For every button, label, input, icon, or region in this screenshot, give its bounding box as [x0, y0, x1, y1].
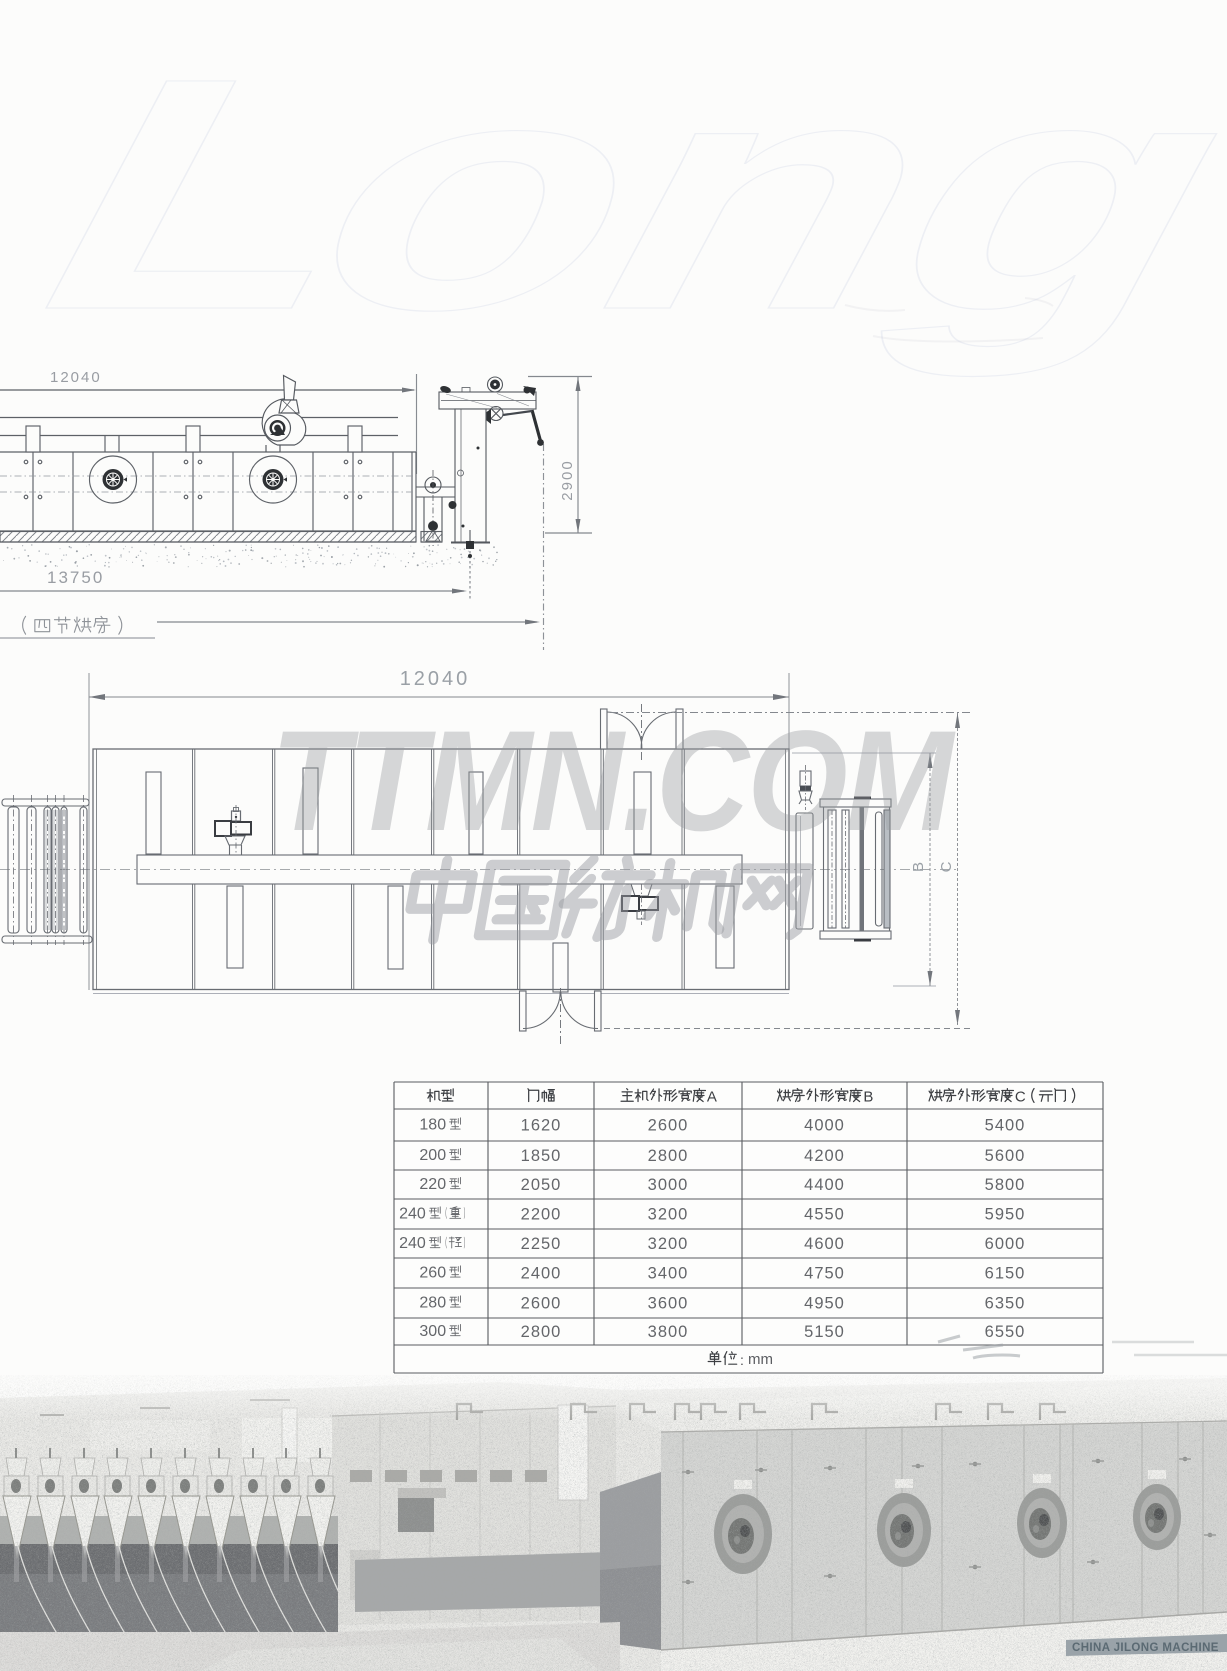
svg-text:4200: 4200 — [804, 1147, 845, 1165]
svg-text:6150: 6150 — [985, 1265, 1026, 1283]
svg-text:B: B — [863, 1089, 873, 1106]
svg-text:1620: 1620 — [521, 1117, 562, 1135]
svg-text:180: 180 — [419, 1117, 446, 1134]
svg-text:240: 240 — [399, 1235, 426, 1252]
svg-text:3400: 3400 — [648, 1265, 689, 1283]
svg-text:CHINA JILONG MACHINE: CHINA JILONG MACHINE — [1072, 1642, 1219, 1654]
svg-text:12040: 12040 — [400, 668, 471, 690]
svg-text:A: A — [707, 1089, 717, 1106]
svg-text:4600: 4600 — [804, 1235, 845, 1253]
svg-text:5950: 5950 — [985, 1206, 1026, 1224]
svg-text:4550: 4550 — [804, 1206, 845, 1224]
svg-text:4400: 4400 — [804, 1176, 845, 1194]
svg-text:3000: 3000 — [648, 1176, 689, 1194]
svg-text:5400: 5400 — [985, 1117, 1026, 1135]
svg-text:5800: 5800 — [985, 1176, 1026, 1194]
svg-text:6350: 6350 — [985, 1295, 1026, 1313]
svg-text:3200: 3200 — [648, 1206, 689, 1224]
svg-text:240: 240 — [399, 1206, 426, 1223]
svg-text:C: C — [1015, 1089, 1026, 1106]
svg-text:5600: 5600 — [985, 1147, 1026, 1165]
svg-text:2400: 2400 — [521, 1265, 562, 1283]
svg-text:4950: 4950 — [804, 1295, 845, 1313]
svg-text:1850: 1850 — [521, 1147, 562, 1165]
svg-text:2250: 2250 — [521, 1235, 562, 1253]
svg-text:220: 220 — [419, 1176, 446, 1193]
svg-text:3200: 3200 — [648, 1235, 689, 1253]
svg-text:6000: 6000 — [985, 1235, 1026, 1253]
svg-text:3600: 3600 — [648, 1295, 689, 1313]
svg-text:2800: 2800 — [648, 1147, 689, 1165]
svg-text:280: 280 — [419, 1295, 446, 1312]
svg-text:2050: 2050 — [521, 1176, 562, 1194]
svg-text:2600: 2600 — [521, 1295, 562, 1313]
svg-text:2200: 2200 — [521, 1206, 562, 1224]
svg-text:200: 200 — [419, 1147, 446, 1164]
svg-text:260: 260 — [419, 1265, 446, 1282]
svg-text:4000: 4000 — [804, 1117, 845, 1135]
svg-text:2600: 2600 — [648, 1117, 689, 1135]
svg-text:4750: 4750 — [804, 1265, 845, 1283]
